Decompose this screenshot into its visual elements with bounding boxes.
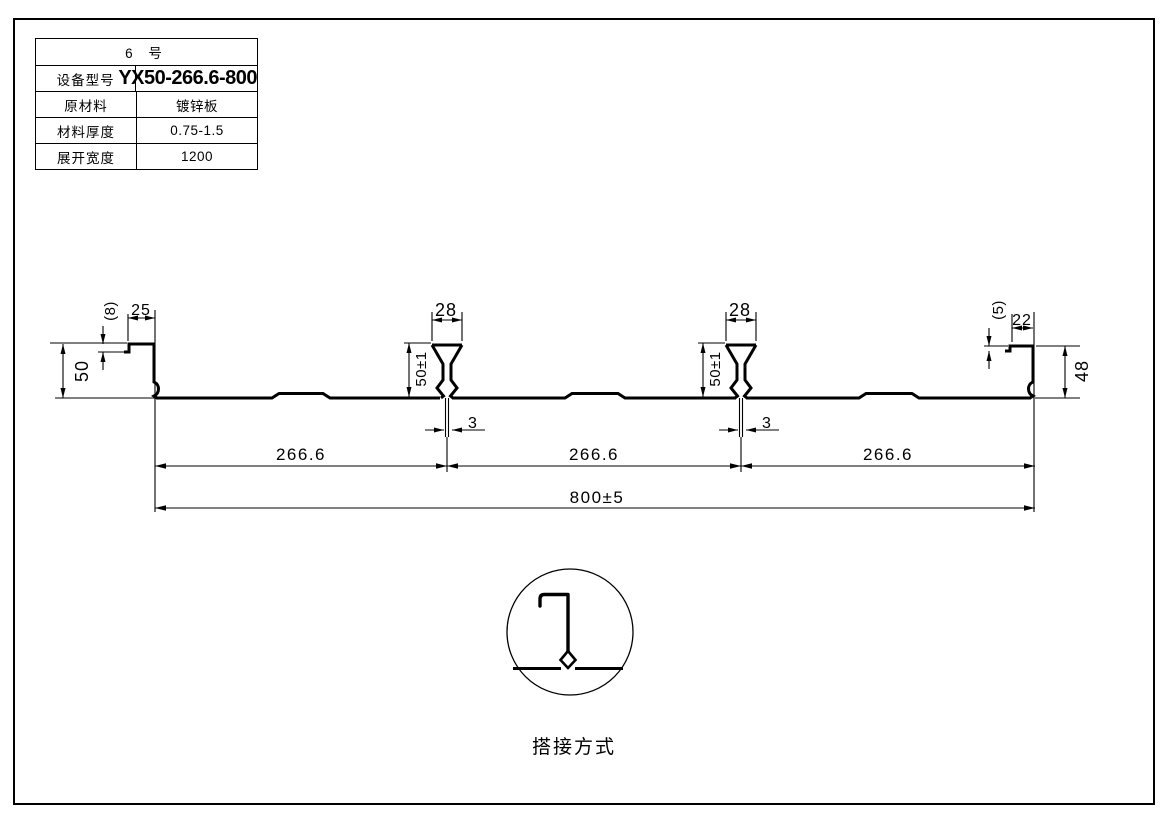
right-edge-profile [1005, 346, 1033, 398]
dim-left-lip: 25 [131, 302, 151, 319]
detail-caption: 搭接方式 [532, 736, 616, 758]
rib-1 [432, 345, 462, 398]
profile-drawing: 25 (8) 50 28 50±1 3 28 50±1 3 22 (5) 48 … [0, 0, 1169, 827]
dim-right-step: (5) [990, 300, 1007, 320]
dim-rib1-height: 50±1 [413, 351, 430, 386]
detail-circle [507, 569, 633, 695]
detail-seam-diamond [561, 651, 576, 668]
flange-span-1 [156, 394, 440, 399]
dim-right-lip: 22 [1012, 312, 1032, 329]
detail-hook [540, 595, 568, 652]
seam-lines-rib-1 [446, 398, 449, 437]
dim-rib2-height: 50±1 [707, 351, 724, 386]
dim-rib2-seam: 3 [762, 415, 772, 432]
seam-lines-rib-2 [740, 398, 743, 437]
panel-cross-section [124, 344, 1033, 437]
dim-span-2: 266.6 [569, 445, 619, 464]
flange-span-2 [452, 394, 736, 399]
dim-span-1: 266.6 [276, 445, 326, 464]
extension-lines [50, 310, 1080, 512]
dim-rib1-seam: 3 [468, 415, 478, 432]
dim-left-step: (8) [102, 301, 119, 321]
flange-span-3 [746, 394, 1031, 399]
dim-rib1-top-width: 28 [435, 300, 457, 320]
rib-2 [726, 345, 756, 398]
dim-right-height: 48 [1072, 360, 1092, 382]
dim-overall-width: 800±5 [570, 488, 625, 507]
dim-left-height: 50 [72, 360, 92, 382]
lap-joint-detail: 搭接方式 [507, 569, 633, 758]
dimension-labels: 25 (8) 50 28 50±1 3 28 50±1 3 22 (5) 48 … [72, 300, 1092, 507]
dim-span-3: 266.6 [863, 445, 913, 464]
left-edge-profile [124, 344, 159, 398]
dim-rib2-top-width: 28 [729, 300, 751, 320]
dimension-lines [61, 316, 1068, 511]
